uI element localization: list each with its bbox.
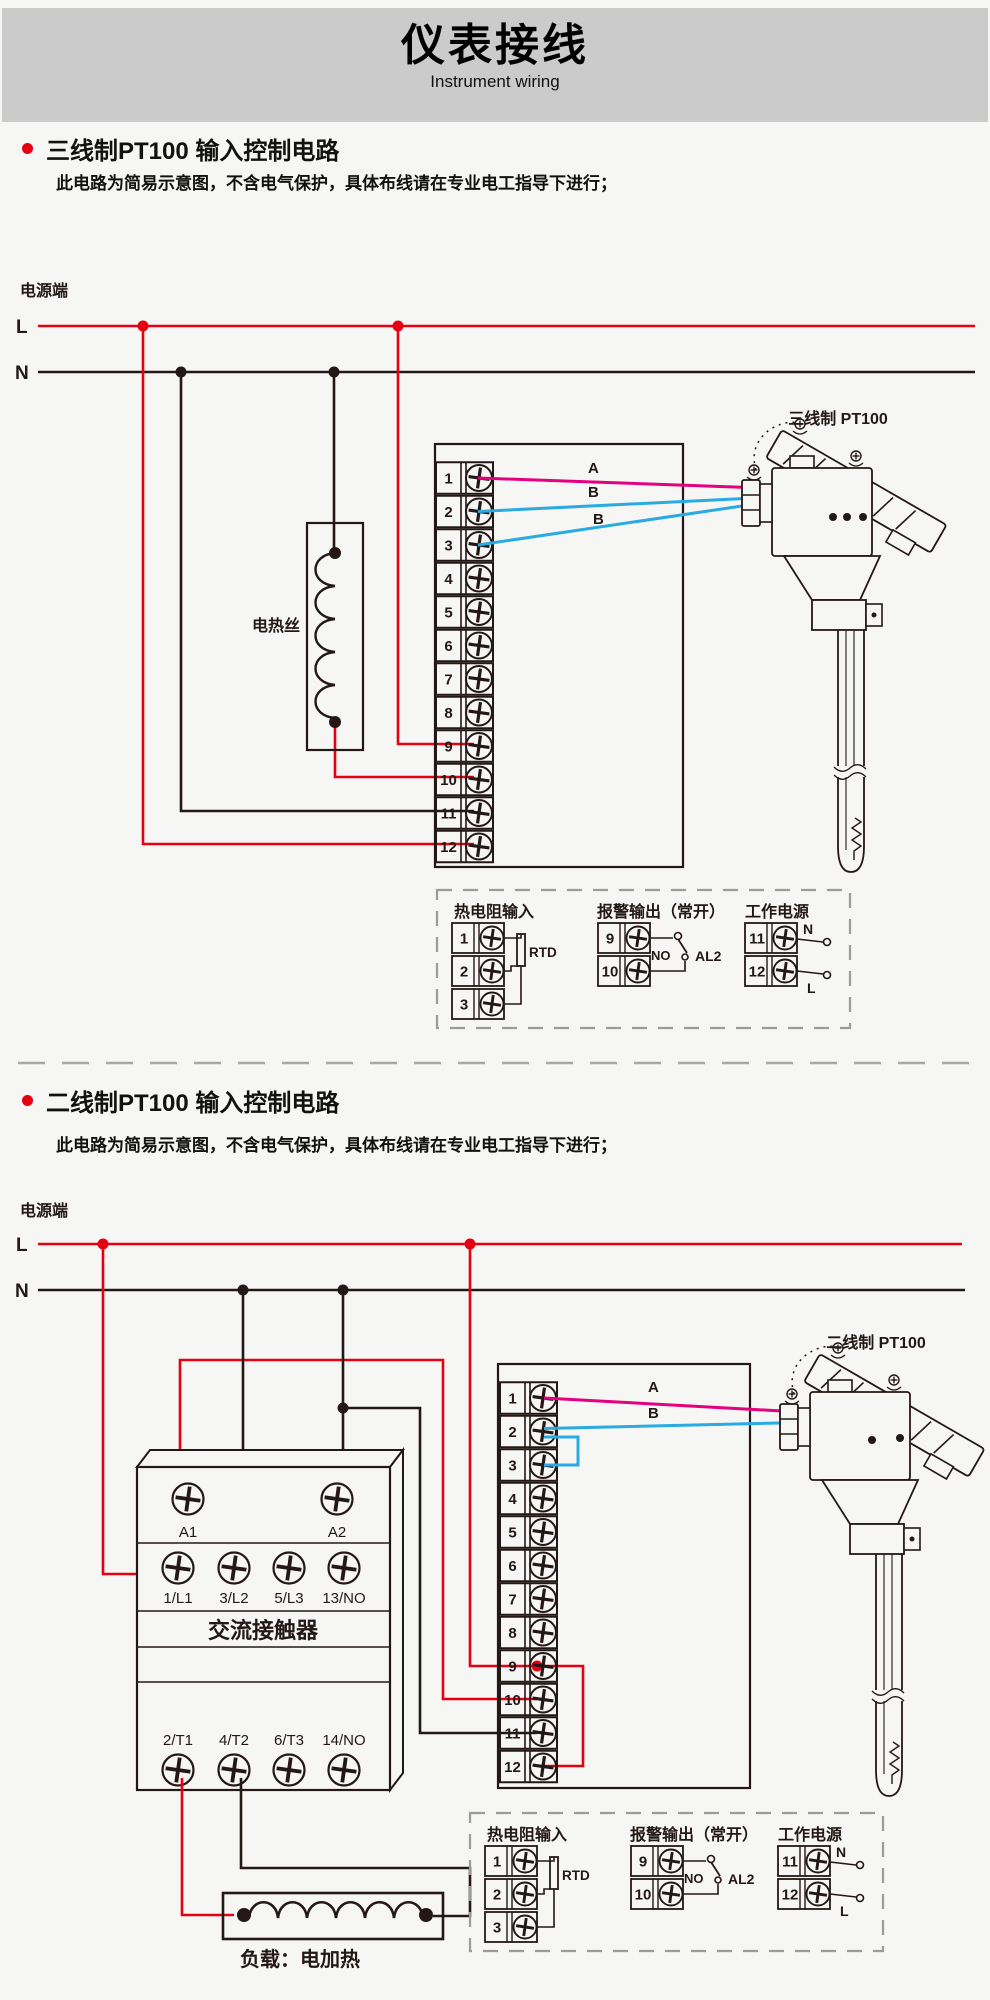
wire-2t1-to-load xyxy=(182,1778,234,1915)
wire-terminal-dot xyxy=(843,513,851,521)
contactor-terminal-label: 6/T3 xyxy=(274,1732,304,1749)
junction-dot xyxy=(338,1403,349,1414)
wire-b2-label: B xyxy=(593,511,604,528)
contactor-a1-label: A1 xyxy=(179,1524,197,1541)
heater: 电热丝 xyxy=(252,523,363,750)
sensor2-label: 二线制 PT100 xyxy=(826,1333,926,1352)
load-label: 负载：电加热 xyxy=(240,1947,360,1971)
line-n-label: N xyxy=(15,1281,29,1302)
load-box xyxy=(223,1893,443,1939)
contactor-terminal-label: 5/L3 xyxy=(274,1590,303,1607)
wire-terminal-dot xyxy=(859,513,867,521)
heater-label: 电热丝 xyxy=(252,616,300,635)
power-side-label: 电源端 xyxy=(20,281,68,300)
contactor-terminal-label: 14/NO xyxy=(322,1732,365,1749)
sensor1-label: 三线制 PT100 xyxy=(788,409,888,428)
wire-4t2-to-load xyxy=(241,1778,470,1916)
load: 负载：电加热 xyxy=(182,1778,470,1971)
wire-terminal-dot xyxy=(896,1434,904,1442)
line-n-label: N xyxy=(15,363,29,384)
wire-a-label: A xyxy=(648,1379,659,1396)
wire-b1-label: B xyxy=(588,484,599,501)
contactor-side-face xyxy=(390,1450,403,1790)
section1-wires xyxy=(143,326,474,844)
wire-terminal-dot xyxy=(868,1436,876,1444)
contactor-terminal-label: 13/NO xyxy=(322,1590,365,1607)
load-coil xyxy=(249,1902,423,1918)
wire-l-to-t9 xyxy=(470,1244,537,1666)
contactor-terminal-label: 3/L2 xyxy=(219,1590,248,1607)
line-l-label: L xyxy=(16,1235,28,1256)
line-l-label: L xyxy=(16,317,28,338)
wire-terminal-dot xyxy=(829,513,837,521)
power-rails xyxy=(38,321,975,378)
contactor-top-face xyxy=(137,1450,403,1467)
contactor-terminal-label: 2/T1 xyxy=(163,1732,193,1749)
contactor-terminal-label: 1/L1 xyxy=(163,1590,192,1607)
contactor-terminal-label: 4/T2 xyxy=(219,1732,249,1749)
wire-b-label: B xyxy=(648,1405,659,1422)
junction-dot xyxy=(329,547,341,559)
section2-circuit: 电源端 L N xyxy=(15,1201,985,1971)
power-side-label: 电源端 xyxy=(20,1201,68,1220)
contactor-name: 交流接触器 xyxy=(208,1618,319,1643)
contactor-a2-label: A2 xyxy=(328,1524,346,1541)
power-rails xyxy=(38,1239,965,1296)
jumper-t2-t3 xyxy=(544,1437,578,1465)
section1-circuit: 电源端 L N 电热丝 xyxy=(15,281,975,1028)
wiring-diagram: 1 2 3 4 5 6 7 8 9 10 11 12 热电阻输入 xyxy=(0,0,990,2000)
wire-l-to-t12 xyxy=(143,326,474,844)
page: { "header": { "title": "仪表接线", "subtitle… xyxy=(0,0,990,2000)
load-terminal-dot xyxy=(237,1908,251,1922)
wire-a-label: A xyxy=(588,460,599,477)
load-terminal-dot xyxy=(419,1908,433,1922)
contactor: A1 A2 1/L1 3/L2 5/L3 13/NO 交流接触器 2/T1 4/… xyxy=(137,1450,403,1790)
heater-coil xyxy=(316,553,336,722)
junction-dot xyxy=(329,716,341,728)
